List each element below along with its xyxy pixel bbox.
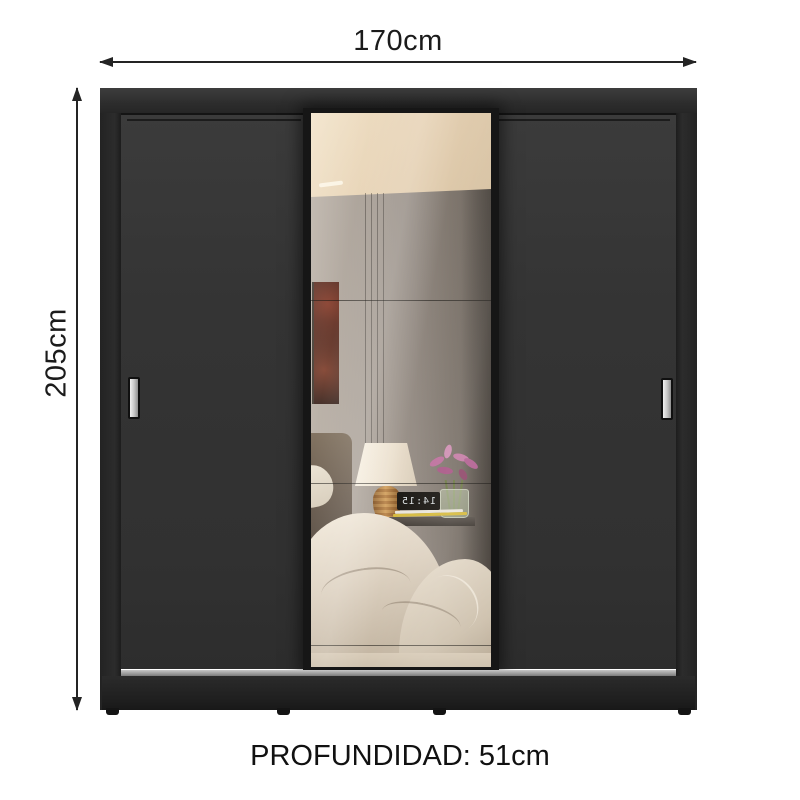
wardrobe-foot [433, 708, 446, 715]
width-dimension-line [100, 61, 696, 63]
height-dimension-line [76, 88, 78, 710]
arrowhead-left-icon [99, 57, 113, 67]
right-door-top-edge [499, 119, 670, 121]
wardrobe-foot [106, 708, 119, 715]
base-plinth [102, 676, 695, 710]
width-dimension-label: 170cm [100, 25, 696, 58]
left-door-top-edge [127, 119, 301, 121]
arrowhead-up-icon [72, 87, 82, 101]
mirror-glass-reflection-overlay [311, 113, 491, 667]
height-dimension-label: 205cm [41, 308, 74, 398]
left-sliding-door [121, 115, 307, 669]
arrowhead-down-icon [72, 697, 82, 711]
right-sliding-door [493, 115, 676, 669]
wardrobe-foot [678, 708, 691, 715]
wardrobe-right-side-panel [676, 88, 697, 710]
right-door-handle [661, 378, 673, 420]
wardrobe: 14:15 [100, 88, 697, 710]
depth-label: PROFUNDIDAD: 51cm [0, 740, 800, 773]
left-door-handle [128, 377, 140, 419]
product-dimension-image: 170cm 205cm PROFUNDIDAD: 51cm [0, 0, 800, 800]
center-mirror-door: 14:15 [303, 108, 499, 672]
arrowhead-right-icon [683, 57, 697, 67]
wardrobe-left-side-panel [100, 88, 121, 710]
mirror: 14:15 [311, 113, 491, 667]
wardrobe-foot [277, 708, 290, 715]
